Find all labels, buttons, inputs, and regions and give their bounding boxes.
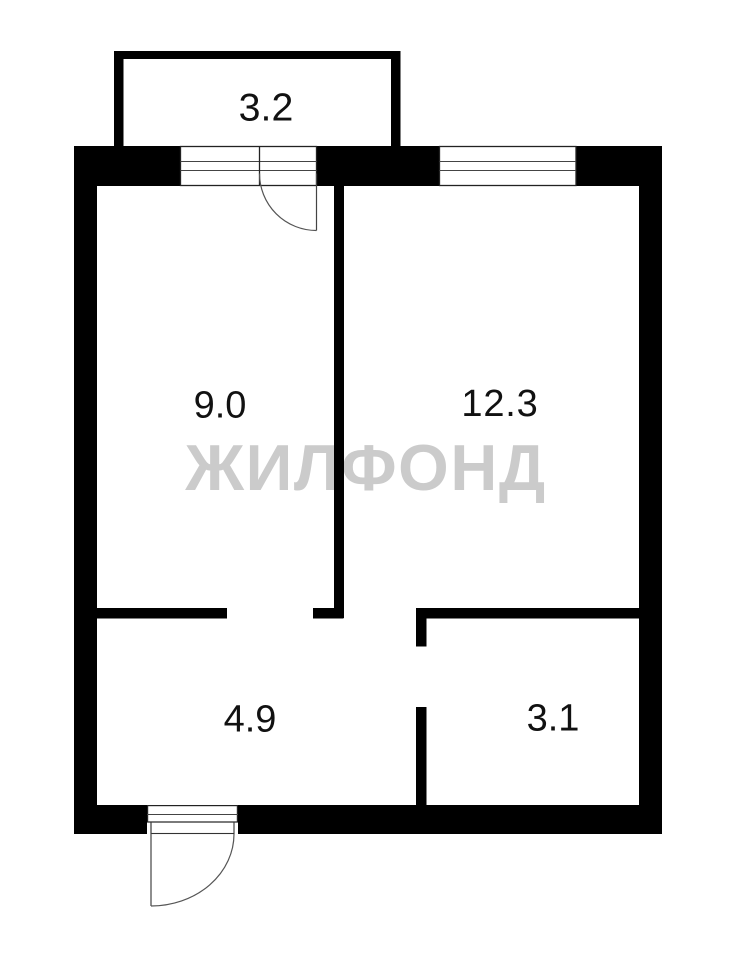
svg-text:ЖИЛФОНД: ЖИЛФОНД	[184, 431, 547, 504]
svg-text:12.3: 12.3	[461, 383, 538, 425]
svg-text:3.2: 3.2	[239, 85, 294, 129]
svg-text:4.9: 4.9	[224, 698, 277, 740]
svg-text:9.0: 9.0	[194, 385, 247, 427]
svg-text:3.1: 3.1	[527, 698, 580, 740]
